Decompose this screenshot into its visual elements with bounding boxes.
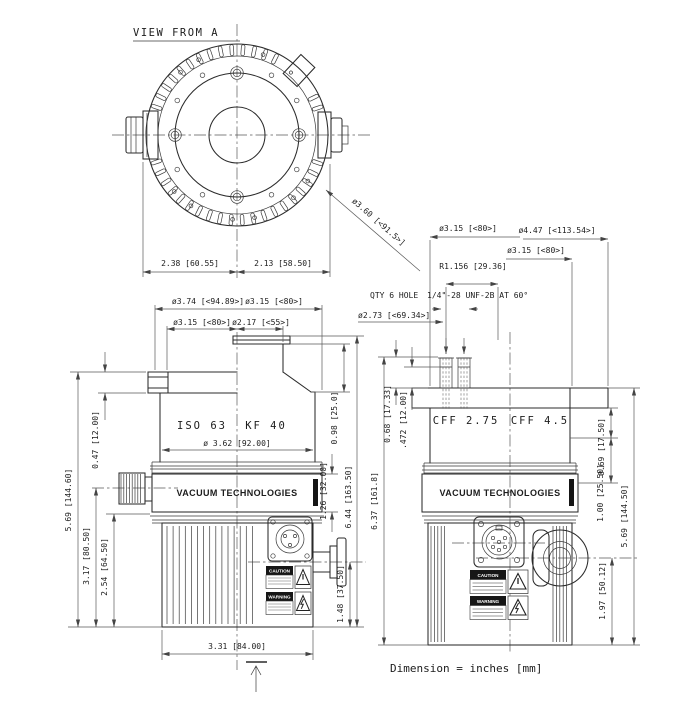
dim-width-base: 3.31 [84.00]	[208, 642, 266, 651]
caution-label: CAUTION	[266, 566, 311, 589]
brand-text-left-view: VACUUM TECHNOLOGIES	[177, 488, 298, 498]
flange-label-cff275: CFF 2.75	[433, 415, 500, 427]
brand-text-right-view: VACUUM TECHNOLOGIES	[440, 488, 561, 498]
warning-label-right: WARNING	[470, 596, 528, 620]
caution-label-text: CAUTION	[269, 569, 291, 574]
dim-height-side-port-right: 1.97 [50.12]	[598, 562, 607, 620]
dim-thread-depth: .472 [12.00]	[399, 391, 408, 449]
dim-flange-step2: 1.00 [25.50]	[596, 464, 605, 522]
dim-height-vent: 3.17 [80.50]	[82, 527, 91, 585]
dim-cff-flange-od: ø4.47 [<113.54>]	[518, 226, 595, 235]
dim-flange-thickness: 0.47 [12.00]	[91, 411, 100, 469]
caution-label-right: CAUTION	[470, 570, 528, 594]
dim-top-left: 2.38 [60.55]	[161, 259, 219, 268]
engineering-drawing: VIEW FROM A 2.38	[0, 0, 700, 700]
dim-flange-od: ø3.74 [<94.89>]	[172, 297, 244, 306]
dim-cff-flange-bc: ø3.15 [<80>]	[507, 246, 565, 255]
dim-height-band: 1.26 [32.00]	[319, 462, 328, 520]
caution-label-text-right: CAUTION	[478, 573, 500, 578]
flange-label-cff45: CFF 4.5	[511, 415, 569, 427]
note-holes-spec: 1/4"-28 UNF-2B AT 60°	[427, 291, 528, 300]
units-note: Dimension = inches [mm]	[390, 662, 542, 675]
dim-radius-bolt: R1.156 [29.36]	[439, 262, 506, 271]
dim-height-motor: 2.54 [64.50]	[100, 538, 109, 596]
dim-kf-tube: ø2.17 [<55>]	[232, 318, 290, 327]
warning-label-text-right: WARNING	[477, 599, 500, 604]
dim-stud-height: 0.68 [17.33]	[383, 385, 392, 443]
dim-body-dia: ø 3.62 [92.00]	[203, 439, 270, 448]
warning-label-text: WARNING	[268, 595, 291, 600]
dim-height-body: 6.44 [163.50]	[344, 466, 353, 529]
flange-label-kf40: KF 40	[245, 420, 287, 432]
dim-neck-dia: ø3.15 [<80>]	[245, 297, 303, 306]
dim-height-total-right: 5.69 [144.50]	[620, 485, 629, 548]
note-holes-qty: QTY 6 HOLE	[370, 291, 418, 300]
dim-height-total-left: 6.37 [161.8]	[370, 472, 379, 530]
dim-height-total: 5.69 [144.60]	[64, 469, 73, 532]
dim-height-neck: 0.98 [25.0]	[330, 392, 339, 445]
band-marker-right	[569, 479, 574, 506]
band-marker	[313, 479, 318, 506]
dim-flange-bc: ø3.15 [<80>]	[173, 318, 231, 327]
dim-bolt-top: ø3.15 [<80>]	[439, 224, 497, 233]
warning-label: WARNING	[266, 592, 311, 615]
dim-top-right: 2.13 [58.50]	[254, 259, 312, 268]
flange-label-iso63: ISO 63	[177, 420, 227, 432]
dim-height-side-port: 1.48 [37.50]	[336, 565, 345, 623]
view-title: VIEW FROM A	[133, 27, 219, 39]
dim-bolt-circle: ø2.73 [<69.34>]	[358, 311, 430, 320]
drawing-page: VIEW FROM A 2.38	[0, 0, 700, 700]
